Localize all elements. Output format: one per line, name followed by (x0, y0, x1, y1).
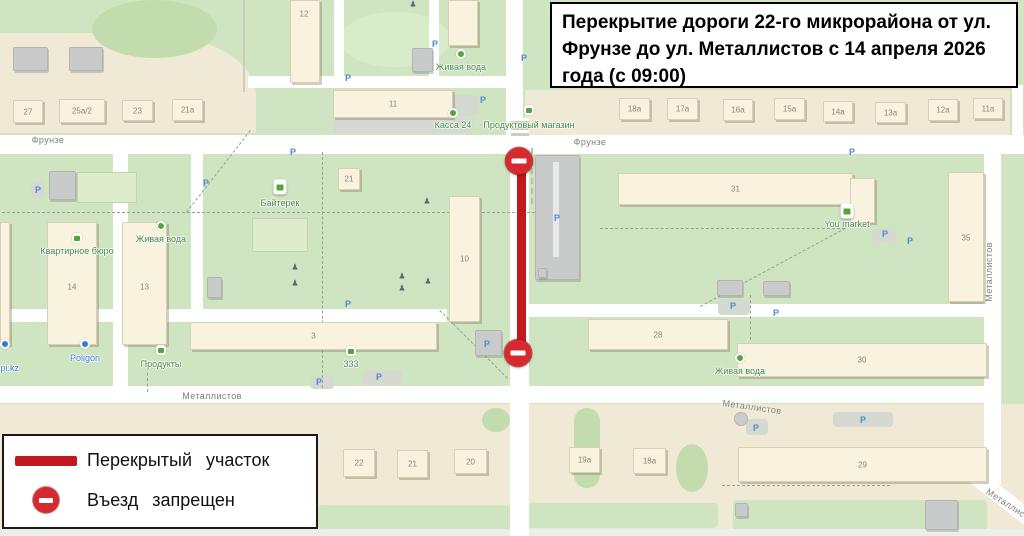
glyph-core (158, 223, 164, 229)
parking-icon: P (849, 147, 855, 157)
glyph-core (458, 51, 464, 57)
building-number: 15а (783, 105, 796, 114)
building-number: 14а (831, 107, 844, 116)
footpath (147, 367, 148, 392)
building-number: 14 (68, 283, 77, 292)
parking-icon: P (290, 147, 296, 157)
building-number: 17а (676, 105, 689, 114)
building (850, 178, 875, 223)
cross-icon (156, 221, 166, 231)
parking-icon: P (432, 39, 438, 49)
street-lamp-icon: ♟ (398, 272, 405, 281)
building-number: 19а (578, 456, 591, 465)
building-number: 12 (300, 10, 309, 19)
street-label: Металлистов (182, 391, 242, 401)
title-text: Перекрытие дороги 22-го микрорайона от у… (562, 12, 991, 87)
building-number: 25а/2 (72, 107, 92, 116)
parking-icon: P (521, 53, 527, 63)
street-lamp-icon: ♟ (423, 197, 430, 206)
footpath (600, 228, 845, 229)
bluedot-icon (0, 339, 10, 349)
street-lamp-icon: ♟ (424, 277, 431, 286)
building-number: 12а (936, 106, 949, 115)
building-number: 28 (654, 330, 663, 339)
service-building (925, 500, 958, 530)
building-number: 18а (628, 105, 641, 114)
road-closure-flyer: 2725а/22321а121118а17а16а15а14а13а12а11а… (0, 0, 1024, 536)
service-building (207, 277, 222, 298)
poi-label: aspi.kz (0, 363, 19, 373)
bluedot-icon (80, 339, 90, 349)
service-building (69, 47, 103, 71)
street-lamp-icon: ♟ (291, 263, 298, 272)
shop-square (524, 105, 534, 115)
parking-icon: P (484, 339, 490, 349)
basket-glyph (74, 236, 80, 241)
building-number: 11а (982, 104, 995, 113)
no-entry-sign (506, 148, 533, 175)
no-entry-sign (505, 340, 532, 367)
street-label: Фрунзе (32, 135, 65, 145)
basket-glyph (277, 184, 284, 190)
bluedot-glyph (0, 339, 10, 349)
cross-icon (456, 49, 466, 59)
play-field (77, 172, 137, 203)
service-building (412, 48, 433, 72)
parking-icon: P (753, 423, 759, 433)
cross-glyph (735, 353, 745, 363)
legend-no-entry-label: Въезд запрещен (87, 490, 235, 511)
building-number: 23 (133, 106, 142, 115)
green-patch (676, 444, 708, 492)
basket-icon (156, 345, 166, 355)
poi-label: Байтерек (261, 198, 300, 208)
building-number: 11 (389, 100, 397, 109)
poi-label: Poligon (70, 353, 100, 363)
green-patch (92, 0, 217, 58)
no-entry-bar (512, 159, 527, 164)
building-number: 21 (408, 460, 417, 469)
parking-icon: P (345, 73, 351, 83)
poi-label: Живая вода (136, 234, 186, 244)
street-lamp-icon: ♟ (398, 284, 405, 293)
building-number: 27 (24, 107, 33, 116)
glyph-core (82, 341, 88, 347)
service-building (763, 281, 790, 296)
poi-label: Продуктовый магазин (483, 120, 574, 130)
basket-icon (346, 346, 356, 356)
building (448, 0, 478, 46)
parking-icon: P (316, 377, 322, 387)
building-number: 22 (355, 459, 364, 468)
road (334, 0, 344, 80)
service-building (538, 268, 547, 278)
poi-label: Касса 24 (435, 120, 472, 130)
shop-square (72, 233, 82, 243)
basket-icon (524, 105, 534, 115)
service-building (49, 171, 76, 200)
street-label: Фрунзе (574, 137, 607, 147)
building-number: 10 (460, 255, 469, 264)
building-number: 13 (140, 283, 149, 292)
path (243, 0, 245, 92)
service-building (13, 47, 48, 71)
title-box: Перекрытие дороги 22-го микрорайона от у… (550, 2, 1018, 88)
road (248, 76, 512, 88)
footpath (750, 295, 751, 340)
building-number: 18а (643, 457, 656, 466)
building-number: 13а (884, 108, 897, 117)
street-label: Металлистов (984, 242, 994, 302)
parking-icon: P (730, 301, 736, 311)
road (1012, 85, 1023, 137)
glyph-core (450, 110, 456, 116)
basket-icon (72, 233, 82, 243)
cross-glyph (456, 49, 466, 59)
road (529, 304, 986, 317)
dot-glyph (448, 108, 458, 118)
poi-label: Живая вода (436, 62, 486, 72)
legend-closed-section-label: Перекрытый участок (87, 450, 269, 471)
parking-icon: P (882, 229, 888, 239)
poi-label: Продукты (141, 359, 182, 369)
poi-label: Живая вода (715, 366, 765, 376)
parking-icon: P (376, 372, 382, 382)
parking-icon: P (35, 185, 41, 195)
basket-glyph (158, 348, 164, 353)
play-field (252, 218, 308, 252)
footpath (722, 485, 890, 486)
green-strip (527, 503, 718, 528)
building-detail (553, 162, 559, 257)
building-number: 29 (858, 460, 867, 469)
parking-icon: P (773, 308, 779, 318)
marker-icon (274, 180, 287, 195)
shop-square (346, 346, 356, 356)
road (191, 154, 203, 316)
building-number: 35 (962, 234, 971, 243)
closed-section-line-icon (15, 456, 77, 466)
shop-square (156, 345, 166, 355)
bluedot-glyph (80, 339, 90, 349)
parking-icon: P (860, 415, 866, 425)
glyph-core (737, 355, 743, 361)
basket-glyph (526, 108, 532, 113)
street-metallistov-vertical-road (984, 154, 1001, 484)
glyph-core (2, 341, 8, 347)
closed-road-line (517, 161, 526, 353)
cross-glyph (156, 221, 166, 231)
building-number: 3 (311, 332, 315, 341)
building-number: 21а (181, 106, 194, 115)
building-number: 30 (858, 356, 867, 365)
legend: Перекрытый участок Въезд запрещен (2, 434, 318, 529)
parking-icon: P (480, 95, 486, 105)
roundabout (734, 412, 748, 426)
shop-marker (274, 180, 287, 195)
parking-icon: P (907, 236, 913, 246)
building-number: 21 (345, 175, 354, 184)
footpath (2, 212, 565, 213)
service-building (717, 280, 743, 296)
green-strip (318, 505, 516, 529)
footpath (322, 152, 323, 388)
green-patch (482, 408, 510, 432)
parking-icon: P (554, 213, 560, 223)
legend-row-no-entry: Въезд запрещен (4, 487, 316, 513)
no-entry-bar (511, 351, 526, 356)
building (0, 222, 10, 345)
legend-row-closed-section: Перекрытый участок (4, 450, 316, 471)
poi-label: You market (824, 219, 869, 229)
street-lamp-icon: ♟ (291, 279, 298, 288)
building-number: 31 (731, 185, 740, 194)
building-number: 16а (731, 106, 744, 115)
cross-icon (735, 353, 745, 363)
dot-icon (448, 108, 458, 118)
building-number: 20 (466, 457, 475, 466)
parking-icon: P (345, 299, 351, 309)
street-metallistov-road (0, 386, 990, 403)
service-building (735, 503, 748, 517)
poi-label: 333 (343, 359, 358, 369)
road (506, 0, 523, 137)
basket-glyph (348, 349, 354, 354)
no-entry-sign-icon (33, 487, 59, 513)
street-lamp-icon: ♟ (409, 0, 416, 9)
shop-marker (841, 204, 854, 219)
marker-icon (841, 204, 854, 219)
basket-glyph (844, 208, 851, 214)
poi-label: Квартирное бюро (40, 246, 113, 256)
parking-icon: P (203, 178, 209, 188)
